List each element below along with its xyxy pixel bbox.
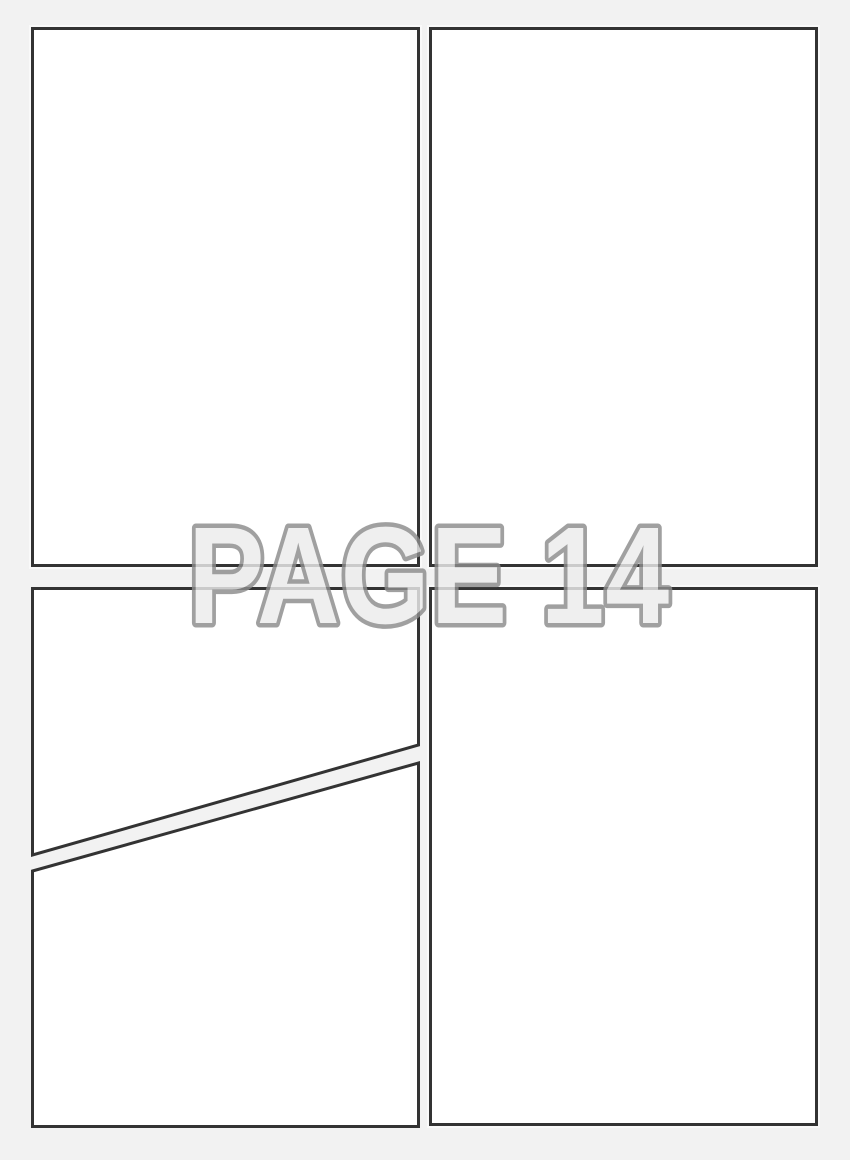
panel-top-right [429, 27, 818, 567]
panel-bottom-right [429, 587, 818, 1126]
panel-top-left [31, 27, 420, 567]
panel-bottom-left-group [31, 587, 420, 1128]
comic-page-template: PAGE 14 [0, 0, 850, 1160]
